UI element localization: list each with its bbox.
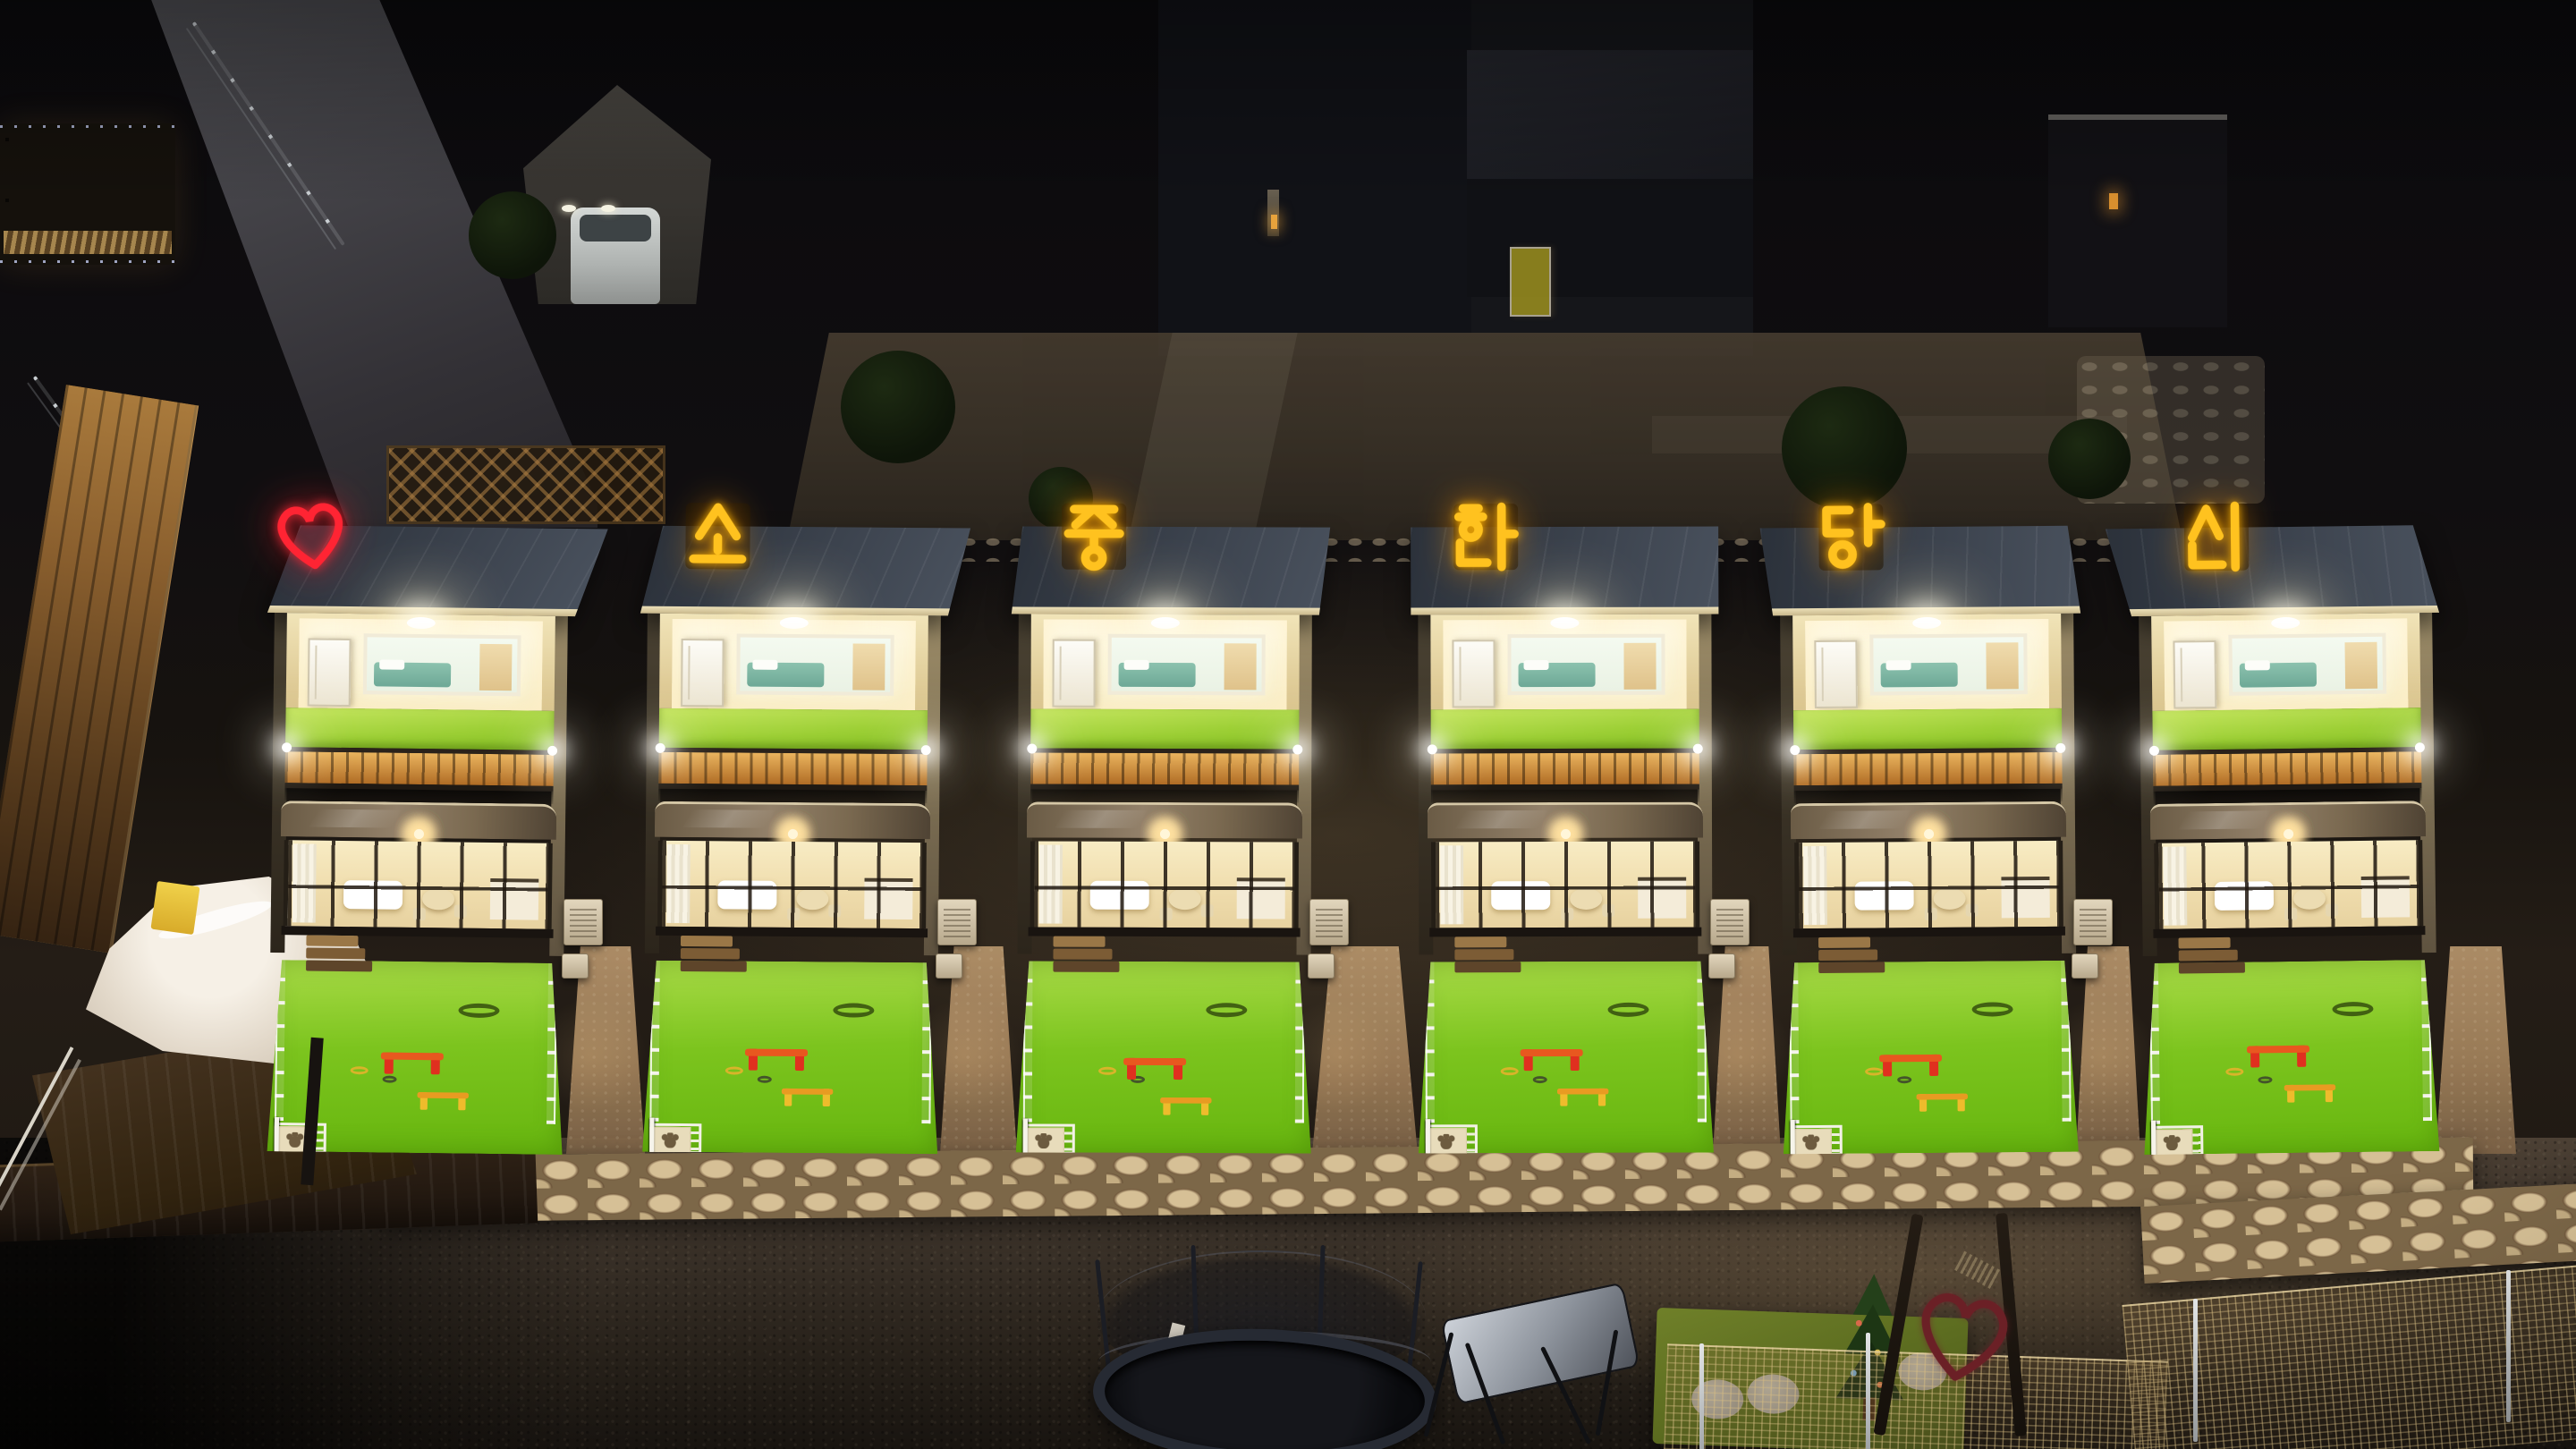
step — [1818, 949, 1877, 961]
trampoline — [1093, 1250, 1442, 1449]
neon-glyph-icon — [1058, 500, 1130, 573]
sunroom-lights — [1036, 828, 1293, 840]
hurdle-bar — [1160, 1097, 1211, 1104]
swing-bench — [1429, 1286, 1655, 1449]
balcony-door — [1052, 640, 1095, 708]
pillow — [379, 659, 404, 669]
yard-fence-right — [2061, 961, 2071, 1122]
shadow-band — [1030, 789, 1299, 802]
yard-fence-left — [2149, 963, 2160, 1124]
ac-grill — [944, 907, 970, 937]
wooden-steps — [1053, 936, 1119, 978]
wooden-steps — [1454, 936, 1521, 978]
sunroom-glass-wall — [284, 840, 553, 929]
yard-fence-right — [2421, 960, 2432, 1121]
balcony-recess — [2164, 618, 2408, 710]
bedroom-window — [736, 634, 894, 696]
ac-grill — [1716, 907, 1743, 937]
terrace-spotlight — [2149, 746, 2159, 756]
upper-floor — [659, 614, 928, 710]
rooftop-neon-sign: 소 — [682, 499, 754, 573]
ac-unit — [562, 953, 589, 979]
paw-icon — [286, 1132, 304, 1148]
swing-canopy — [1440, 1282, 1640, 1404]
sunroom-base — [1793, 927, 2065, 937]
lit-window — [5, 138, 9, 141]
toy-ring — [1098, 1067, 1116, 1075]
ac-unit — [1309, 899, 1349, 945]
sunroom-lights — [2159, 827, 2417, 842]
ac-grill — [2080, 907, 2106, 937]
agility-hurdle-red — [1524, 1047, 1589, 1071]
wall-lamp — [780, 617, 809, 629]
pillow — [1524, 660, 1549, 670]
gravel-gap — [2436, 946, 2516, 1154]
yard-front-fence — [2151, 1114, 2433, 1157]
fence-post — [649, 1118, 654, 1154]
yard-fence-left — [1425, 962, 1434, 1123]
agility-hurdle-red — [1883, 1053, 1947, 1077]
ac-unit — [1308, 953, 1335, 979]
neon-glyph-icon — [1815, 500, 1887, 574]
windshield — [580, 215, 651, 241]
ac-unit — [2073, 899, 2113, 945]
balcony-recess — [1443, 620, 1686, 710]
balcony-door — [1452, 640, 1495, 708]
terrace-spotlight — [1292, 744, 1302, 754]
pillow — [752, 660, 777, 670]
terrace-spotlight — [656, 743, 665, 753]
agility-hurdle-red — [749, 1047, 813, 1072]
terrace-spotlight — [921, 745, 931, 755]
terrace-turf — [2152, 708, 2421, 750]
door-panel-line — [1459, 647, 1461, 700]
white-car — [571, 208, 660, 304]
toy-ring — [2225, 1068, 2243, 1076]
yard-fence-left — [1023, 961, 1033, 1122]
hurdle-bar — [2247, 1046, 2309, 1054]
balcony-door — [1814, 640, 1858, 708]
terrace-turf — [659, 708, 928, 750]
hurdle-bar — [418, 1092, 469, 1098]
terrace-spotlight — [1428, 744, 1437, 754]
door-panel-line — [315, 646, 318, 699]
glass-sunroom — [1030, 801, 1300, 936]
wardrobe — [852, 644, 885, 691]
glass-reflection — [2178, 810, 2271, 829]
rooftop-neon-sign: 중 — [1058, 500, 1130, 573]
paw-panel — [1791, 1129, 1832, 1156]
fenced-play-yard — [1782, 961, 2079, 1155]
balcony-door — [681, 639, 724, 707]
glass-reflection — [1055, 810, 1148, 828]
wood-slat-railing — [2153, 747, 2422, 792]
glass-mullions — [2158, 840, 2419, 929]
hurdle-bar — [1917, 1094, 1968, 1100]
upper-floor — [286, 613, 555, 711]
round-tree — [469, 191, 556, 279]
heart-gate-decoration — [1866, 1213, 2063, 1449]
bedroom-window — [363, 633, 521, 696]
wood-slat-railing — [1793, 748, 2062, 791]
dark-shed — [2048, 114, 2227, 327]
house-tower — [1158, 0, 1471, 333]
wardrobe — [1986, 642, 2018, 689]
light-bulb — [787, 829, 797, 839]
paw-icon — [1035, 1133, 1053, 1148]
hurdle-bar — [1521, 1049, 1583, 1056]
ac-unit — [936, 953, 962, 979]
paw-panel — [2151, 1129, 2192, 1157]
turf-ring — [1608, 1003, 1649, 1017]
toy-ring — [1897, 1076, 1911, 1083]
balcony-recess — [672, 619, 916, 710]
upper-floor — [1430, 614, 1699, 710]
deck-slats — [4, 231, 172, 254]
agility-hurdle-yellow — [420, 1090, 473, 1110]
night-aerial-scene: ♡ — [0, 0, 2576, 1449]
balcony-recess — [1805, 619, 2049, 710]
light-bulb — [2284, 829, 2293, 839]
string-lights — [0, 125, 175, 128]
fence-post — [1791, 1120, 1795, 1156]
paw-icon — [1437, 1134, 1455, 1149]
house-roof — [1467, 50, 1753, 184]
sunroom-glass-wall — [2154, 840, 2423, 929]
step — [1818, 962, 1885, 973]
ac-unit — [1710, 899, 1750, 945]
sunroom-glass-wall — [1030, 841, 1299, 928]
bedroom-window — [2228, 633, 2386, 696]
porch-light — [1271, 215, 1277, 229]
sunroom-glass-wall — [1431, 842, 1699, 928]
yard-fence-left — [1789, 962, 1799, 1123]
agility-hurdle-red — [1127, 1056, 1191, 1080]
yard-fence-left — [649, 961, 659, 1122]
lit-window — [5, 199, 9, 202]
light-bulb — [1924, 829, 1934, 839]
round-tree — [1782, 386, 1907, 510]
glass-reflection — [682, 809, 775, 828]
fence-post — [275, 1117, 279, 1153]
turf-ring — [1972, 1002, 2013, 1016]
wooden-steps — [2178, 937, 2245, 979]
fenced-play-yard — [1016, 961, 1312, 1153]
agility-hurdle-red — [385, 1051, 449, 1075]
ac-grill — [1316, 907, 1343, 937]
wood-slat-railing — [1030, 748, 1299, 790]
paw-icon — [1802, 1134, 1820, 1149]
wood-slat-railing — [1431, 749, 1699, 791]
hurdle-bar — [381, 1053, 444, 1061]
sunroom-lights — [290, 827, 547, 842]
rooftop-neon-sign: 신 — [2181, 500, 2253, 574]
glass-sunroom — [284, 801, 554, 938]
wood-slat-railing — [285, 747, 555, 792]
toy-ring — [725, 1066, 743, 1074]
wood-slat-railing — [658, 748, 927, 791]
agility-hurdle-red — [2250, 1044, 2315, 1068]
wall-lamp — [2271, 617, 2300, 629]
step — [1054, 936, 1106, 947]
terrace-spotlight — [2415, 742, 2425, 752]
pension-unit: 소 — [656, 496, 929, 1159]
ac-unit — [2072, 953, 2098, 979]
balcony-recess — [1043, 620, 1286, 710]
lit-cabin — [0, 123, 175, 265]
yard-fence-right — [921, 962, 931, 1123]
sunroom-lights — [1436, 829, 1694, 841]
bedroom-window — [1108, 634, 1266, 696]
yard-front-fence — [1023, 1114, 1304, 1155]
glass-reflection — [1455, 810, 1548, 828]
turf-ring — [2332, 1002, 2373, 1017]
rooftop-neon-sign: 한 — [1450, 500, 1521, 573]
pension-unit: 신 — [2149, 495, 2426, 1160]
yard-front-fence — [649, 1114, 930, 1156]
fence-post — [1699, 1343, 1704, 1449]
terrace-spotlight — [2055, 743, 2065, 753]
turf-ring — [458, 1004, 499, 1019]
step — [1454, 936, 1506, 947]
paw-icon — [2163, 1135, 2181, 1150]
hurdle-bar — [1123, 1058, 1186, 1065]
step — [681, 948, 740, 960]
glass-reflection — [309, 809, 402, 828]
pension-unit: 당 — [1792, 496, 2065, 1159]
roof — [2106, 525, 2439, 616]
terrace-turf — [1793, 708, 2062, 750]
fenced-play-yard — [642, 961, 939, 1155]
neon-glyph-icon — [2181, 500, 2253, 574]
fence-post — [2151, 1121, 2156, 1157]
hurdle-bar — [782, 1089, 833, 1095]
step — [2179, 962, 2245, 974]
fenced-play-yard — [2142, 960, 2440, 1155]
window-light — [2109, 193, 2118, 209]
turf-ring — [833, 1003, 874, 1017]
sunroom-lights — [1800, 828, 2057, 841]
upper-floor — [1792, 614, 2062, 710]
wall-lamp — [1550, 617, 1579, 629]
light-bulb — [1159, 829, 1169, 839]
glass-sunroom — [1794, 801, 2063, 937]
step — [681, 961, 747, 972]
pillow — [1886, 660, 1911, 670]
terrace-turf — [1030, 708, 1299, 749]
terrace-turf — [1431, 709, 1699, 750]
glass-mullions — [288, 840, 548, 929]
main-house — [1158, 0, 1753, 356]
terrace-spotlight — [547, 746, 557, 756]
paw-icon — [661, 1132, 679, 1148]
string-lights — [0, 260, 175, 263]
pension-unit: 중 — [1030, 496, 1301, 1158]
glass-mullions — [662, 841, 922, 928]
yellow-door — [1510, 247, 1551, 317]
sunroom-base — [1429, 928, 1701, 937]
roof — [1760, 526, 2081, 616]
ac-grill — [570, 907, 597, 937]
terrace-turf — [285, 708, 555, 750]
step — [1053, 962, 1119, 972]
door-panel-line — [688, 646, 690, 699]
upper-floor — [2151, 613, 2420, 711]
yard-front-fence — [1426, 1115, 1707, 1156]
wall-lamp — [407, 617, 436, 629]
round-tree — [841, 351, 955, 463]
bedroom-window — [1507, 634, 1665, 695]
yellow-box — [150, 881, 199, 935]
wooden-fence-wall — [0, 385, 199, 953]
wardrobe — [1224, 643, 1257, 690]
toy-ring — [2258, 1076, 2272, 1083]
yard-front-fence — [1791, 1114, 2072, 1156]
toy-ring — [1865, 1067, 1883, 1075]
neon-glyph-icon — [1450, 500, 1521, 573]
fence-post — [1426, 1119, 1430, 1155]
neon-glyph-icon — [682, 499, 754, 573]
step — [1053, 949, 1112, 960]
fence-post — [2193, 1299, 2198, 1442]
terrace-spotlight — [1790, 745, 1800, 755]
sunroom-lights — [664, 828, 921, 841]
balcony-door — [308, 638, 352, 707]
toy-ring — [383, 1076, 397, 1083]
step — [2179, 950, 2238, 962]
hurdle-bar — [1879, 1055, 1942, 1063]
door-panel-line — [1059, 647, 1061, 700]
pension-unit: 한 — [1430, 496, 1700, 1159]
headlight — [562, 205, 576, 212]
step — [306, 947, 365, 959]
glass-sunroom — [1431, 802, 1699, 937]
door-panel-line — [2181, 648, 2183, 701]
glass-sunroom — [2154, 801, 2424, 938]
light-bulb — [1561, 829, 1571, 839]
rooftop-neon-sign: 당 — [1815, 500, 1887, 574]
fence-post — [2506, 1270, 2511, 1422]
neon-glyph-icon — [259, 486, 362, 582]
glass-mullions — [1035, 841, 1294, 928]
round-tree — [2048, 419, 2131, 499]
glass-mullions — [1799, 841, 2059, 928]
wardrobe — [2344, 642, 2377, 689]
sunroom-glass-wall — [1794, 841, 2063, 928]
pillow — [2245, 660, 2270, 670]
ac-unit — [937, 899, 977, 945]
toy-ring — [1533, 1076, 1547, 1083]
heart-outline-icon — [1882, 1266, 2043, 1405]
wall-lamp — [1912, 617, 1941, 629]
ac-unit — [1708, 953, 1735, 979]
hurdle-bar — [2284, 1084, 2335, 1090]
step — [306, 960, 372, 971]
balcony-door — [2173, 640, 2216, 709]
ac-unit — [563, 899, 603, 945]
paw-panel — [1023, 1127, 1064, 1154]
hurdle-bar — [1557, 1089, 1608, 1095]
toy-ring — [351, 1066, 369, 1074]
turf-ring — [1206, 1003, 1247, 1017]
light-bulb — [413, 829, 423, 839]
agility-hurdle-yellow — [1919, 1092, 1972, 1112]
headlight — [601, 205, 615, 212]
hurdle-bar — [745, 1049, 808, 1057]
toy-ring — [758, 1076, 772, 1083]
rooftop-neon-sign: ♡ — [259, 486, 362, 582]
paw-panel — [1426, 1128, 1467, 1155]
agility-hurdle-yellow — [2287, 1083, 2340, 1103]
upper-floor — [1030, 614, 1299, 709]
terrace-spotlight — [1693, 744, 1703, 754]
yard-fence-right — [1697, 962, 1706, 1123]
wardrobe — [479, 644, 513, 691]
yard-fence-right — [547, 963, 557, 1124]
step — [1454, 949, 1513, 960]
wooden-steps — [681, 936, 747, 978]
balcony-recess — [299, 618, 543, 710]
shadow-band — [1431, 790, 1699, 803]
wall-lamp — [1151, 617, 1180, 629]
step — [306, 935, 358, 946]
step — [2178, 937, 2230, 949]
agility-hurdle-yellow — [1560, 1087, 1613, 1106]
wooden-steps — [306, 935, 373, 977]
toy-ring — [1501, 1067, 1519, 1075]
step — [681, 936, 733, 946]
paw-panel — [649, 1127, 691, 1154]
yard-fence-right — [1295, 962, 1305, 1123]
sunroom-glass-wall — [657, 841, 927, 928]
agility-hurdle-yellow — [784, 1087, 837, 1106]
glass-sunroom — [657, 801, 927, 937]
terrace-spotlight — [282, 742, 292, 752]
wooden-steps — [1818, 936, 1885, 979]
door-panel-line — [1821, 648, 1823, 701]
glass-reflection — [1818, 810, 1911, 829]
wardrobe — [1623, 643, 1656, 690]
agility-hurdle-yellow — [1163, 1096, 1216, 1115]
dim-window — [1267, 190, 1279, 236]
step — [1818, 937, 1870, 948]
terrace-spotlight — [1027, 743, 1037, 753]
fenced-play-yard — [1418, 962, 1714, 1154]
bedroom-window — [1869, 633, 2028, 695]
pillow — [1124, 660, 1149, 670]
step — [1454, 962, 1521, 972]
glass-mullions — [1436, 842, 1695, 928]
fence-post — [1023, 1118, 1028, 1154]
